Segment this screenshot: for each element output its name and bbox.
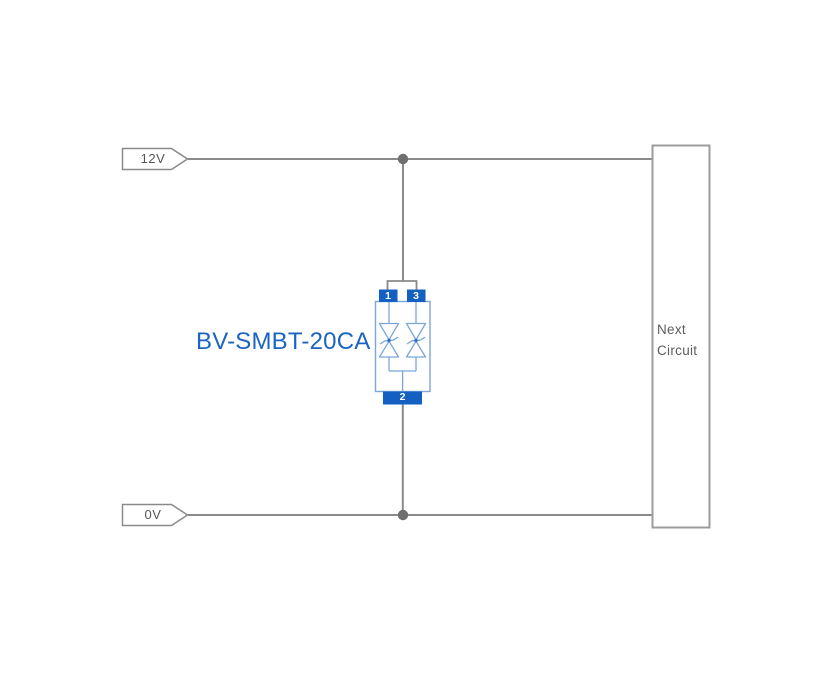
junction-dot-bottom [398, 510, 408, 520]
schematic-canvas: 12V 0V BV-SMBT-20CA Next Circuit 1 3 2 [0, 0, 832, 675]
diode-right-center-dot [414, 339, 417, 342]
pin-2-number: 2 [383, 391, 422, 404]
pin-3-number: 3 [407, 290, 425, 302]
diode-left-center-dot [387, 339, 390, 342]
pin-1-number: 1 [379, 290, 397, 302]
next-circuit-label: Next Circuit [657, 320, 715, 362]
net-label-12v: 12V [122, 148, 184, 169]
junction-dot-top [398, 154, 408, 164]
net-label-0v: 0V [122, 504, 184, 525]
component-label: BV-SMBT-20CA [196, 328, 370, 356]
tvs-component [376, 290, 431, 405]
